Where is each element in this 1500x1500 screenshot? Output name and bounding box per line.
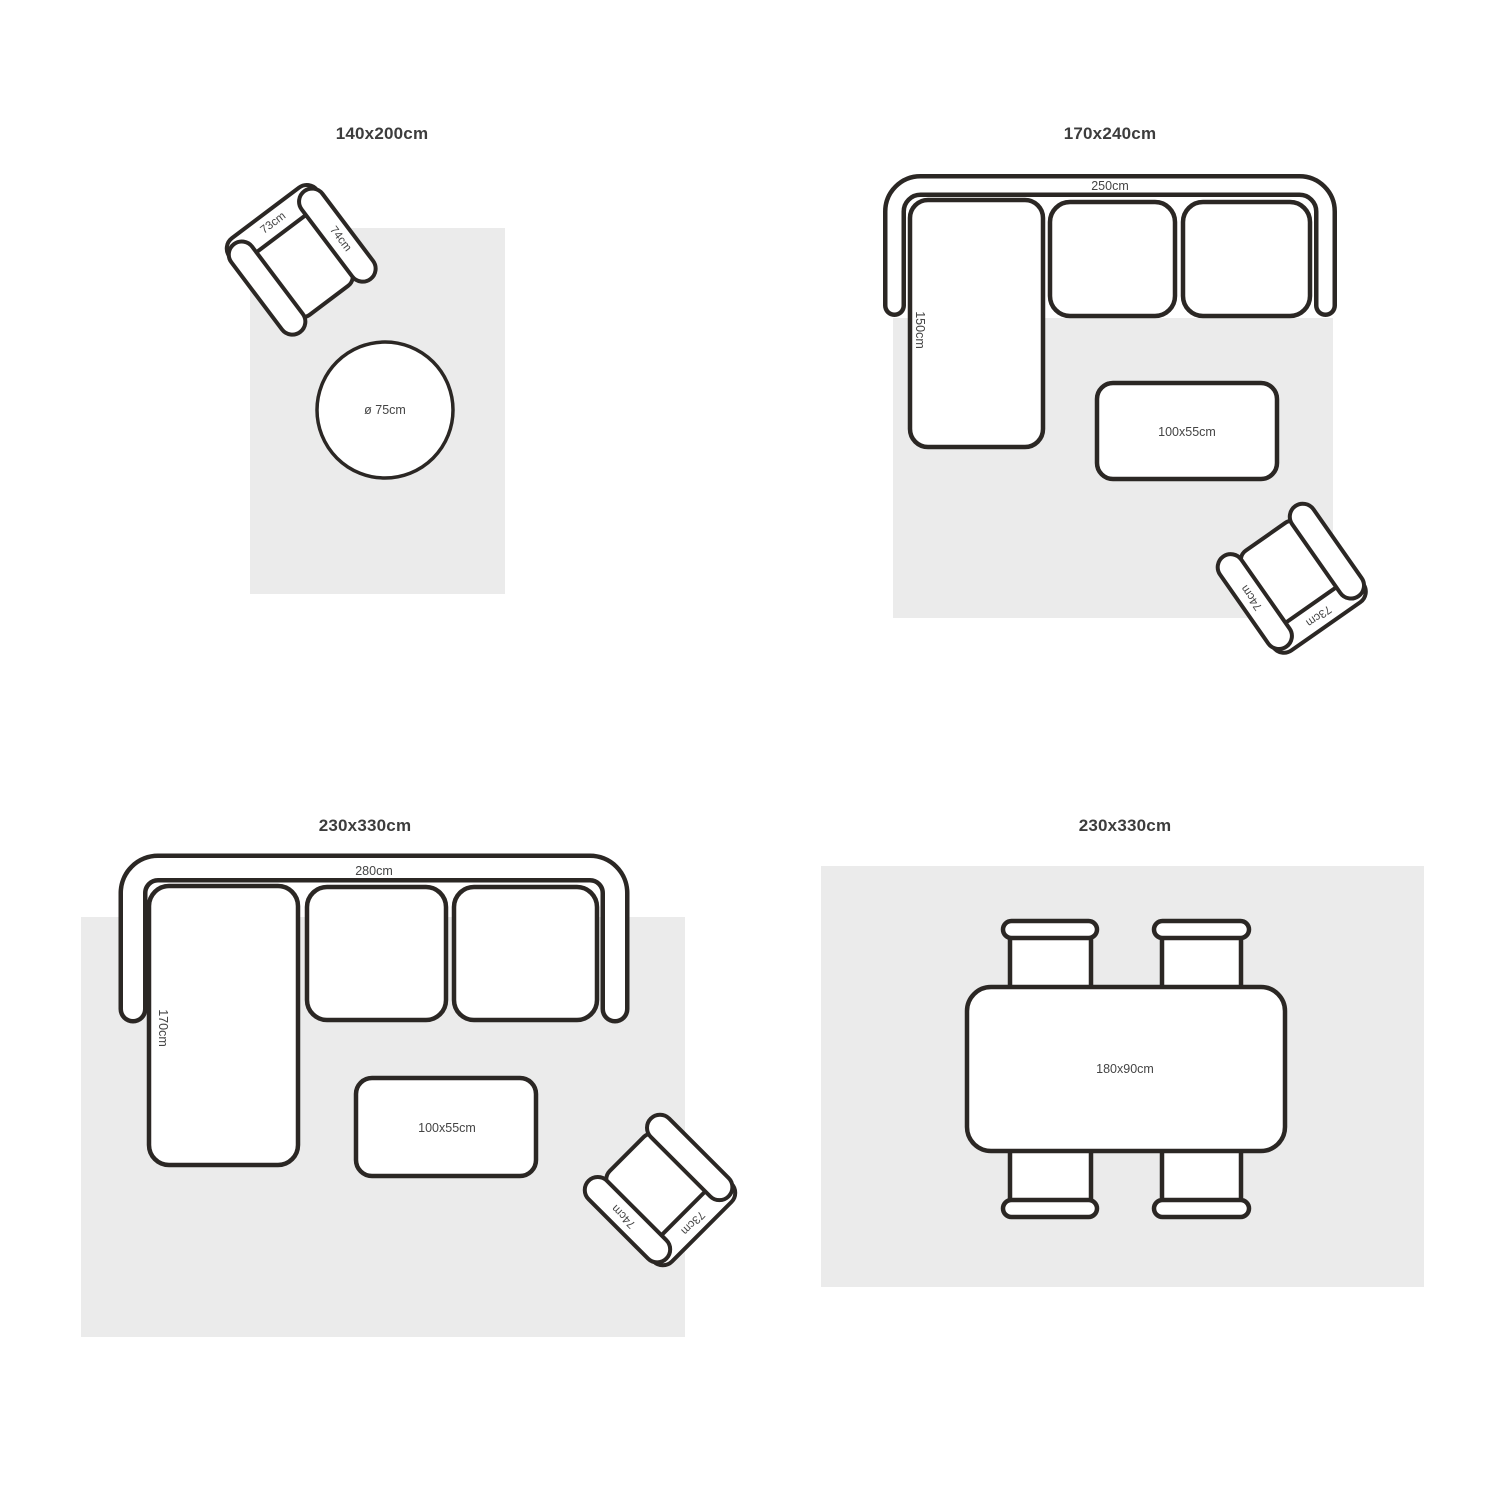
sofa-cushion: [307, 887, 446, 1020]
quadrant-title: 230x330cm: [215, 816, 515, 836]
round-table-dimension: ø 75cm: [364, 403, 406, 417]
quadrant-title: 140x200cm: [232, 124, 532, 144]
sofa-chaise: [149, 886, 298, 1165]
sofa-width-dimension: 250cm: [1091, 179, 1129, 193]
dining-table-dimension: 180x90cm: [1096, 1062, 1154, 1076]
sofa-cushion: [454, 887, 597, 1020]
quadrant-title: 170x240cm: [960, 124, 1260, 144]
sofa-chaise: [910, 200, 1043, 447]
sofa-chaise-dimension: 170cm: [156, 1009, 170, 1047]
sofa-cushion: [1050, 202, 1175, 316]
dining-chair-backrest: [1003, 1200, 1097, 1217]
sofa-width-dimension: 280cm: [355, 864, 393, 878]
rug-size-guide: 140x200cm 170x240cm 230x330cm 230x330cm …: [0, 0, 1500, 1500]
quadrant-title: 230x330cm: [975, 816, 1275, 836]
dining-chair-backrest: [1154, 1200, 1249, 1217]
coffee-table-dimension: 100x55cm: [1158, 425, 1216, 439]
sofa-chaise-dimension: 150cm: [913, 311, 927, 349]
dining-chair-backrest: [1003, 921, 1097, 938]
furniture-diagram: [0, 0, 1500, 1500]
sofa-cushion: [1183, 202, 1310, 316]
coffee-table-dimension: 100x55cm: [418, 1121, 476, 1135]
dining-chair-backrest: [1154, 921, 1249, 938]
